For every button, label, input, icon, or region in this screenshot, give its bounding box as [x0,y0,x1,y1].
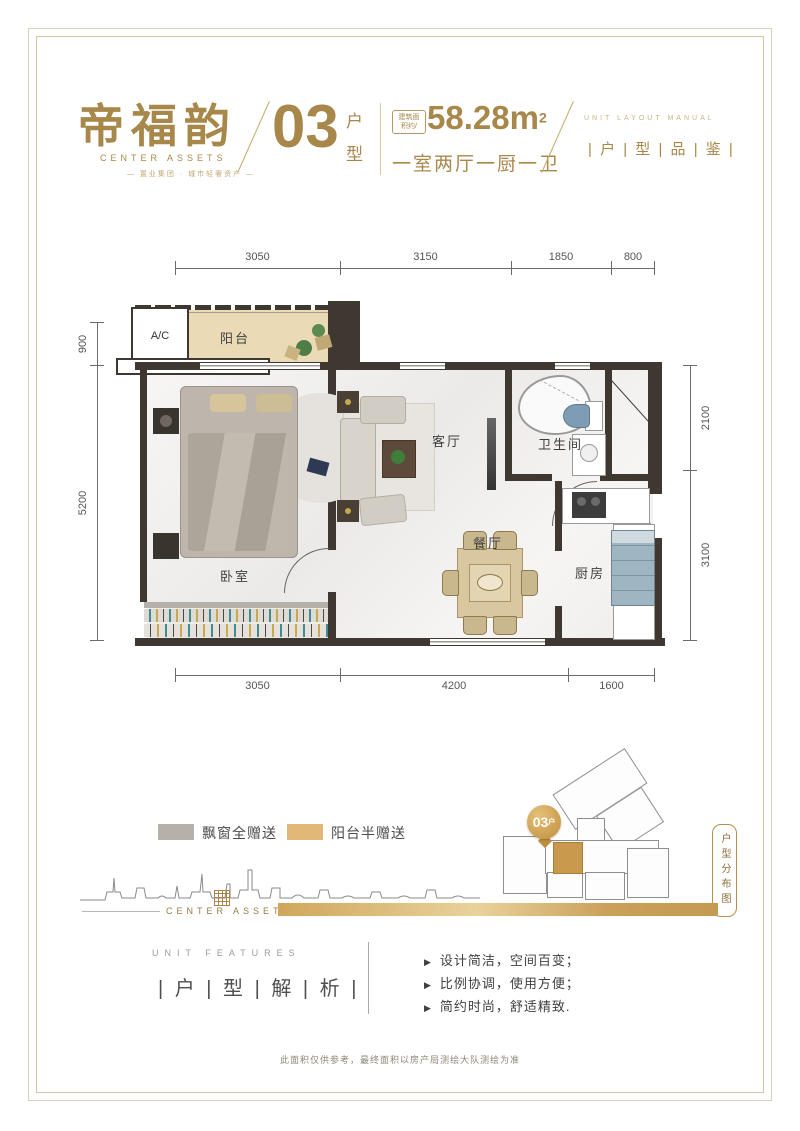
wall-column [328,301,360,369]
wall-segment [140,362,147,602]
layout-description: 一室两厅一厨一卫 [392,149,560,176]
dim-line-top [175,268,655,269]
wall-segment [605,370,612,481]
wall-segment [505,370,512,474]
marker-suffix: 户 [548,817,555,827]
feature-text: 设计简洁，空间百变； [440,953,580,968]
burner [577,497,586,506]
fridge [611,530,655,606]
wall-segment [555,481,562,551]
disclaimer-text: 此面积仅供参考，最终面积以房产局测绘大队测绘为准 [0,1053,800,1066]
siteplan-unit-03 [553,842,583,874]
dim-tick [90,640,104,641]
dim-tick [654,261,655,275]
dim-tick [683,365,697,366]
burner [591,497,600,506]
bay-window-decor [144,624,330,637]
table-plant [391,450,405,464]
cooktop [572,492,606,518]
dining-label: 餐厅 [473,533,503,552]
dim-tick [683,640,697,641]
floorplan: 3050 3150 1850 800 3050 4200 1600 900 52… [60,248,760,710]
dim-top-4: 800 [611,251,655,263]
window [555,363,590,369]
dim-line-left [97,322,98,640]
triangle-bullet-icon: ▶ [424,957,432,967]
series-english: UNIT LAYOUT MANUAL [584,115,715,122]
blanket [188,433,290,551]
dim-left-1: 900 [77,334,89,352]
dim-tick [683,470,697,471]
side-table-lamp [345,399,351,405]
triangle-bullet-icon: ▶ [424,980,432,990]
nightstand-lamp [160,415,172,427]
feature-text: 比例协调，使用方便； [440,976,580,991]
siteplan-building [585,872,625,900]
dim-tick [511,261,512,275]
bathroom-label: 卫生间 [538,434,583,453]
dim-bottom-1: 3050 [175,680,340,692]
dim-tick [175,261,176,275]
siteplan-building [503,836,547,894]
legend-label-balcony: 阳台半赠送 [331,823,406,843]
feature-item: ▶比例协调，使用方便； [424,973,580,992]
dim-right-2: 3100 [700,543,712,567]
side-table-lamp [345,508,351,514]
marker-number: 03 [533,814,549,830]
dim-top-1: 3050 [175,251,340,263]
features-title-cn: | 户 | 型 | 解 | 析 | [158,972,359,1001]
legend-swatch-gray [158,824,194,840]
nightstand [153,533,179,559]
dim-left-2: 5200 [77,490,89,514]
dim-top-2: 3150 [340,251,511,263]
chair [442,570,459,596]
wall-segment [555,606,562,638]
unit-char-xing: 型 [346,140,364,165]
unit-char-hu: 户 [346,107,364,132]
brand-tagline: — 置业集团 · 城市轻奢资产 — [76,169,306,179]
chair [493,616,517,635]
dim-top-3: 1850 [511,251,611,263]
area-badge: 建筑面 积约/ [392,110,426,134]
city-skyline [80,858,480,906]
siteplan-building [627,848,669,898]
balcony-label: 阳台 [220,328,250,347]
brandbar-text: CENTER ASSETS [166,906,293,916]
chair [521,570,538,596]
unit-marker: 03户 [527,805,561,839]
bay-window-decor [144,609,330,622]
dim-right-1: 2100 [700,405,712,429]
window [430,639,545,645]
siteplan-building [547,872,583,898]
gold-gradient-bar [278,903,718,916]
chair [463,616,487,635]
sliding-door [200,363,320,369]
features-divider [368,942,369,1014]
armchair [359,494,408,527]
tv-panel [487,418,496,490]
triangle-bullet-icon: ▶ [424,1003,432,1013]
brochure-page: 帝福韵 CENTER ASSETS — 置业集团 · 城市轻奢资产 — 03 户… [0,0,800,1131]
kitchen-label: 厨房 [575,563,605,582]
siteplan [495,760,695,900]
dim-bottom-3: 1600 [568,680,655,692]
area-badge-line2: 积约/ [395,122,423,131]
series-chinese: | 户 | 型 | 品 | 鉴 | [588,138,735,159]
dim-line-bottom [175,675,655,676]
legend-label-bay: 飘窗全赠送 [202,823,277,843]
brandbar-line [82,911,160,912]
brand-name: 帝福韵 [78,90,237,156]
dim-line-right [690,365,691,640]
area-value-wrap: 58.28m2 [427,99,547,137]
sofa [340,418,376,502]
feature-item: ▶简约时尚，舒适精致. [424,996,571,1015]
dim-tick [611,261,612,275]
legend-swatch-gold [287,824,323,840]
toilet [563,404,590,428]
feature-item: ▶设计简洁，空间百变； [424,950,580,969]
wall-segment [328,592,336,638]
ac-label: A/C [151,330,169,342]
wall-segment [505,474,552,481]
bay-window-sill [144,602,330,608]
living-label: 客厅 [432,431,462,450]
pillow [256,394,292,412]
brand-english: CENTER ASSETS [100,153,227,163]
pillow [210,394,246,412]
armchair [360,396,406,424]
ac-platform: A/C [131,307,189,364]
window [400,363,445,369]
bedroom-label: 卧室 [220,566,250,585]
dim-bottom-2: 4200 [340,680,568,692]
area-value: 58.28m [427,99,539,136]
unit-number: 03 [272,97,339,157]
brand-title: 帝福韵 [78,101,237,152]
platter [477,574,503,591]
feature-text: 简约时尚，舒适精致. [440,999,571,1014]
wall-segment [135,638,665,646]
area-superscript: 2 [539,110,547,126]
unit-number-suffix: 户 型 [346,107,364,165]
dim-tick [340,261,341,275]
seal-logo-icon [214,890,230,906]
balcony-floor [189,310,330,365]
area-badge-line1: 建筑面 [395,113,423,122]
header-divider [380,103,381,175]
features-title-en: UNIT FEATURES [152,948,301,958]
